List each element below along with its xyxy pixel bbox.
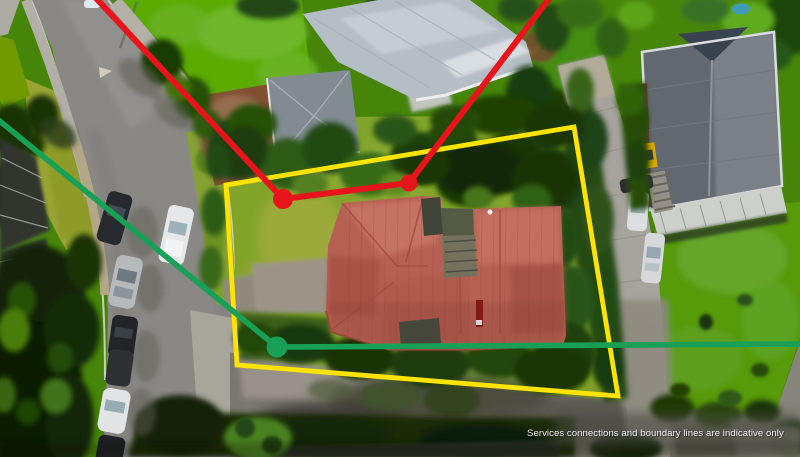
svg-text:Services connections and bound: Services connections and boundary lines … bbox=[527, 428, 784, 439]
